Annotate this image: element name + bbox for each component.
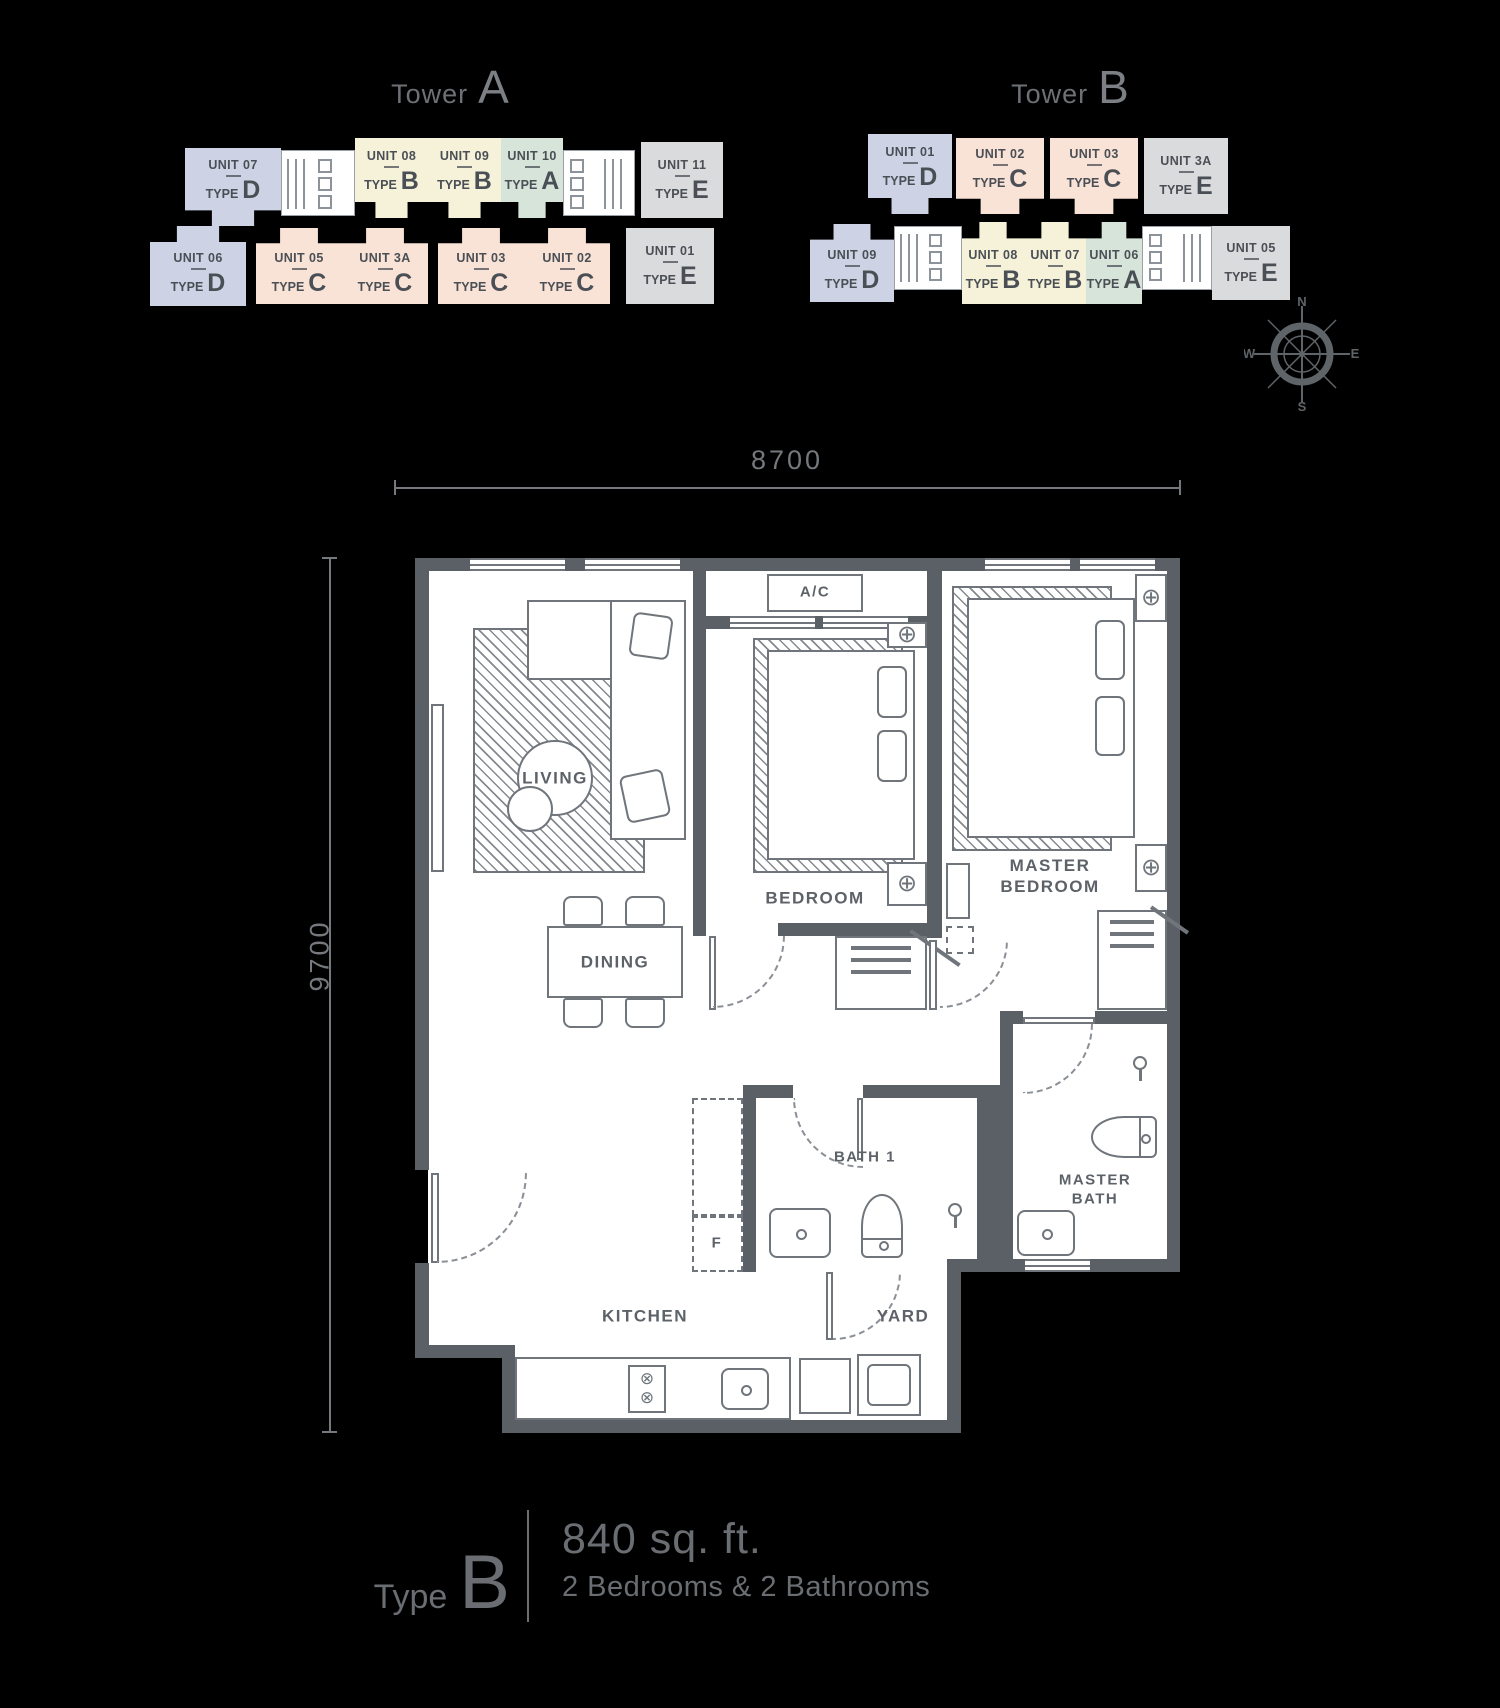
unit-number: UNIT 06 bbox=[173, 251, 222, 265]
type-word: TYPE bbox=[437, 178, 470, 192]
area-text: 840 sq. ft. bbox=[562, 1515, 762, 1564]
bath1-label: BATH 1 bbox=[834, 1149, 896, 1168]
dimension-tick bbox=[394, 480, 396, 495]
type-word: TYPE bbox=[505, 178, 538, 192]
window-icon bbox=[470, 558, 565, 571]
dimension-tick bbox=[322, 1431, 337, 1433]
tower-a-unit-07: UNIT 07 TYPED bbox=[185, 148, 281, 226]
dimension-tick bbox=[1179, 480, 1181, 495]
kitchen-sink-icon bbox=[721, 1368, 769, 1410]
divider bbox=[1087, 164, 1102, 166]
divider bbox=[845, 265, 860, 267]
type-letter: A bbox=[541, 170, 559, 193]
floor-plan-page: { "towers": [ { "label": "Tower", "lette… bbox=[0, 0, 1500, 1708]
tower-b-word: Tower bbox=[1011, 79, 1088, 110]
nightstand-lamp-icon bbox=[887, 622, 927, 648]
coffee-table bbox=[507, 786, 553, 832]
divider bbox=[292, 268, 307, 270]
wall bbox=[1095, 1011, 1167, 1024]
master-wardrobe bbox=[1097, 910, 1167, 1010]
tower-a-core-1 bbox=[281, 150, 355, 216]
door-leaf bbox=[1023, 1017, 1095, 1024]
divider bbox=[474, 268, 489, 270]
wall bbox=[1013, 1011, 1023, 1024]
unit-number: UNIT 10 bbox=[507, 149, 556, 163]
type-word: TYPE bbox=[1159, 183, 1192, 197]
tower-a-unit-10: UNIT 10 TYPEA bbox=[501, 138, 563, 218]
tower-a-unit-09: UNIT 09 TYPEB bbox=[428, 138, 501, 218]
type-word: TYPE bbox=[1067, 176, 1100, 190]
unit-number: UNIT 06 bbox=[1089, 248, 1138, 262]
door-leaf bbox=[929, 940, 937, 1010]
type-word: TYPE bbox=[1224, 270, 1257, 284]
dimension-tick bbox=[322, 557, 337, 559]
unit-number: UNIT 01 bbox=[645, 244, 694, 258]
dimension-width-label: 8700 bbox=[697, 445, 877, 476]
wall bbox=[415, 1263, 429, 1358]
tower-b-unit-07: UNIT 07 TYPEB bbox=[1024, 222, 1086, 304]
type-letter: C bbox=[394, 272, 412, 295]
type-word: TYPE bbox=[966, 277, 999, 291]
tower-b-core-2 bbox=[1142, 226, 1212, 290]
wall bbox=[977, 1085, 1013, 1272]
divider bbox=[663, 261, 678, 263]
type-word: TYPE bbox=[1028, 277, 1061, 291]
pillow bbox=[1095, 696, 1125, 756]
divider bbox=[986, 265, 1001, 267]
wall bbox=[1000, 1011, 1013, 1085]
compass-w: W bbox=[1244, 346, 1256, 361]
pillow bbox=[877, 666, 907, 718]
divider bbox=[903, 162, 918, 164]
tower-a-title: Tower A bbox=[340, 60, 560, 114]
unit-number: UNIT 08 bbox=[367, 149, 416, 163]
tower-a-unit-03: UNIT 03 TYPEC bbox=[438, 228, 524, 304]
divider bbox=[1179, 171, 1194, 173]
divider bbox=[384, 166, 399, 168]
master-bedroom-label: MASTER BEDROOM bbox=[980, 855, 1120, 898]
yard-label: YARD bbox=[877, 1305, 930, 1326]
tower-b-unit-01: UNIT 01 TYPED bbox=[868, 134, 952, 214]
tower-b-unit-3a: UNIT 3A TYPEE bbox=[1144, 138, 1228, 214]
type-letter: B bbox=[401, 170, 419, 193]
unit-number: UNIT 3A bbox=[1160, 154, 1211, 168]
wall bbox=[1167, 558, 1180, 1272]
tower-a-unit-08: UNIT 08 TYPEB bbox=[355, 138, 428, 218]
nightstand-lamp-icon bbox=[1135, 574, 1167, 622]
type-word: TYPE bbox=[540, 280, 573, 294]
tv-console bbox=[431, 704, 444, 872]
compass-e: E bbox=[1351, 346, 1360, 361]
tower-b-title: Tower B bbox=[960, 60, 1180, 114]
nightstand-lamp-icon bbox=[887, 862, 927, 906]
unit-number: UNIT 11 bbox=[658, 158, 707, 172]
master-bath-label: MASTER BATH bbox=[1047, 1171, 1143, 1209]
washer-icon bbox=[857, 1354, 921, 1416]
lift-icon bbox=[929, 234, 942, 247]
tower-a-unit-06: UNIT 06 TYPED bbox=[150, 226, 246, 306]
dresser bbox=[946, 863, 970, 919]
vanity-sink-icon bbox=[1017, 1210, 1075, 1256]
lift-icon bbox=[570, 159, 584, 173]
dining-chair bbox=[563, 896, 603, 926]
tower-b-unit-06: UNIT 06 TYPEA bbox=[1086, 222, 1142, 304]
unit-number: UNIT 03 bbox=[456, 251, 505, 265]
type-word: Type bbox=[374, 1578, 448, 1617]
wall bbox=[863, 1085, 977, 1098]
lift-icon bbox=[1149, 268, 1162, 281]
wardrobe bbox=[835, 936, 927, 1010]
lift-icon bbox=[318, 195, 332, 209]
type-letter: B bbox=[1064, 269, 1082, 292]
wall bbox=[415, 558, 429, 1170]
stove-icon: ⊗⊗ bbox=[628, 1365, 666, 1413]
tower-b-unit-09: UNIT 09 TYPED bbox=[810, 224, 894, 302]
divider bbox=[378, 268, 393, 270]
divider bbox=[560, 268, 575, 270]
unit-number: UNIT 02 bbox=[542, 251, 591, 265]
exterior-void bbox=[428, 1358, 502, 1420]
stairs-icon bbox=[1183, 234, 1205, 282]
compass-n: N bbox=[1297, 296, 1306, 309]
divider bbox=[1107, 265, 1122, 267]
unit-number: UNIT 07 bbox=[208, 158, 257, 172]
unit-number: UNIT 07 bbox=[1030, 248, 1079, 262]
type-letter: C bbox=[1103, 168, 1121, 191]
type-letter: C bbox=[576, 272, 594, 295]
divider bbox=[993, 164, 1008, 166]
tower-a-unit-3a: UNIT 3A TYPEC bbox=[342, 228, 428, 304]
type-word: TYPE bbox=[973, 176, 1006, 190]
divider bbox=[1048, 265, 1063, 267]
type-letter: C bbox=[1009, 168, 1027, 191]
compass-s: S bbox=[1298, 399, 1307, 412]
tower-b-unit-05: UNIT 05 TYPEE bbox=[1212, 226, 1290, 300]
lift-icon bbox=[570, 177, 584, 191]
type-word: TYPE bbox=[364, 178, 397, 192]
unit-number: UNIT 01 bbox=[885, 145, 934, 159]
dining-chair bbox=[563, 998, 603, 1028]
dining-label: DINING bbox=[581, 951, 650, 972]
type-word: TYPE bbox=[272, 280, 305, 294]
tower-a-word: Tower bbox=[391, 79, 468, 110]
type-letter: D bbox=[919, 166, 937, 189]
washer-drum bbox=[867, 1364, 911, 1406]
type-title: Type B bbox=[374, 1551, 510, 1617]
window-icon bbox=[985, 558, 1070, 571]
tower-b-letter: B bbox=[1098, 60, 1129, 114]
type-word: TYPE bbox=[206, 187, 239, 201]
window-icon bbox=[585, 558, 680, 571]
type-letter: E bbox=[1196, 175, 1213, 198]
config-text: 2 Bedrooms & 2 Bathrooms bbox=[562, 1571, 930, 1604]
wall bbox=[947, 1259, 961, 1433]
ac-label: A/C bbox=[800, 584, 830, 603]
type-letter: E bbox=[1261, 262, 1278, 285]
stairs-icon bbox=[287, 159, 309, 209]
pillow bbox=[877, 730, 907, 782]
divider bbox=[1244, 258, 1259, 260]
divider bbox=[675, 175, 690, 177]
wall bbox=[693, 571, 706, 936]
washer-icon bbox=[799, 1358, 851, 1414]
dimension-height-line bbox=[329, 558, 331, 1433]
lift-icon bbox=[318, 159, 332, 173]
plan-legend: Type B 840 sq. ft. 2 Bedrooms & 2 Bathro… bbox=[250, 1505, 1010, 1635]
toilet-icon bbox=[861, 1194, 903, 1258]
divider bbox=[457, 166, 472, 168]
lift-icon bbox=[570, 195, 584, 209]
pillow bbox=[1095, 620, 1125, 680]
dining-chair bbox=[625, 998, 665, 1028]
lift-icon bbox=[1149, 234, 1162, 247]
fridge-label: F bbox=[712, 1235, 723, 1254]
type-letter: D bbox=[242, 179, 260, 202]
cushion bbox=[628, 611, 674, 660]
unit-number: UNIT 05 bbox=[1226, 241, 1275, 255]
unit-number: UNIT 02 bbox=[975, 147, 1024, 161]
toilet-icon bbox=[1091, 1116, 1157, 1158]
sink-icon bbox=[769, 1208, 831, 1258]
divider bbox=[525, 166, 540, 168]
tower-b-unit-03: UNIT 03 TYPEC bbox=[1050, 138, 1138, 214]
compass-icon: N E S W bbox=[1244, 296, 1360, 412]
type-word: TYPE bbox=[1087, 277, 1120, 291]
wall bbox=[743, 1085, 756, 1272]
lift-icon bbox=[929, 268, 942, 281]
shower-icon bbox=[1133, 1056, 1151, 1084]
unit-number: UNIT 09 bbox=[440, 149, 489, 163]
window-icon bbox=[730, 616, 815, 629]
wall bbox=[502, 1345, 515, 1433]
window-icon bbox=[1025, 1259, 1090, 1272]
tower-a-letter: A bbox=[478, 60, 509, 114]
type-letter: B bbox=[1002, 269, 1020, 292]
wall bbox=[778, 923, 927, 936]
stairs-icon bbox=[900, 234, 920, 282]
type-letter: B bbox=[474, 170, 492, 193]
stairs-icon bbox=[604, 159, 626, 209]
wall bbox=[927, 571, 942, 938]
bedroom-label: BEDROOM bbox=[765, 887, 864, 908]
type-word: TYPE bbox=[358, 280, 391, 294]
unit-number: UNIT 05 bbox=[274, 251, 323, 265]
window-icon bbox=[1080, 558, 1155, 571]
type-letter: C bbox=[308, 272, 326, 295]
kitchen-label: KITCHEN bbox=[602, 1305, 688, 1326]
lift-icon bbox=[929, 251, 942, 264]
type-word: TYPE bbox=[883, 174, 916, 188]
lift-icon bbox=[1149, 251, 1162, 264]
unit-number: UNIT 03 bbox=[1069, 147, 1118, 161]
type-word: TYPE bbox=[454, 280, 487, 294]
type-word: TYPE bbox=[825, 277, 858, 291]
wall bbox=[415, 1345, 515, 1358]
divider bbox=[191, 268, 206, 270]
type-letter: C bbox=[490, 272, 508, 295]
type-letter: A bbox=[1123, 269, 1141, 292]
shower-icon bbox=[948, 1203, 966, 1229]
type-word: TYPE bbox=[171, 280, 204, 294]
tower-b-unit-08: UNIT 08 TYPEB bbox=[962, 222, 1024, 304]
tower-a-unit-02: UNIT 02 TYPEC bbox=[524, 228, 610, 304]
type-letter: B bbox=[459, 1551, 510, 1616]
type-letter: D bbox=[861, 269, 879, 292]
dimension-width-line bbox=[395, 487, 1180, 489]
unit-number: UNIT 08 bbox=[968, 248, 1017, 262]
lift-icon bbox=[318, 177, 332, 191]
tower-a-unit-05: UNIT 05 TYPEC bbox=[256, 228, 342, 304]
tower-a-unit-11: UNIT 11 TYPEE bbox=[641, 142, 723, 218]
tower-a-core-2 bbox=[563, 150, 635, 216]
tower-b-core-1 bbox=[894, 226, 962, 290]
type-word: TYPE bbox=[655, 187, 688, 201]
tower-b-unit-02: UNIT 02 TYPEC bbox=[956, 138, 1044, 214]
store-outline bbox=[692, 1098, 743, 1216]
type-letter: E bbox=[692, 179, 709, 202]
wall bbox=[502, 1420, 961, 1433]
divider bbox=[226, 175, 241, 177]
legend-divider bbox=[527, 1510, 529, 1622]
type-letter: D bbox=[207, 272, 225, 295]
nightstand-lamp-icon bbox=[1135, 844, 1167, 892]
dining-chair bbox=[625, 896, 665, 926]
unit-number: UNIT 09 bbox=[827, 248, 876, 262]
type-letter: E bbox=[680, 265, 697, 288]
tower-a-unit-01: UNIT 01 TYPEE bbox=[626, 228, 714, 304]
door-leaf bbox=[826, 1272, 833, 1340]
unit-floor-plan: A/C LIVING DINING BEDROOM MASTER BEDROOM bbox=[395, 558, 1180, 1433]
type-word: TYPE bbox=[643, 273, 676, 287]
living-label: LIVING bbox=[522, 767, 588, 788]
unit-number: UNIT 3A bbox=[359, 251, 410, 265]
